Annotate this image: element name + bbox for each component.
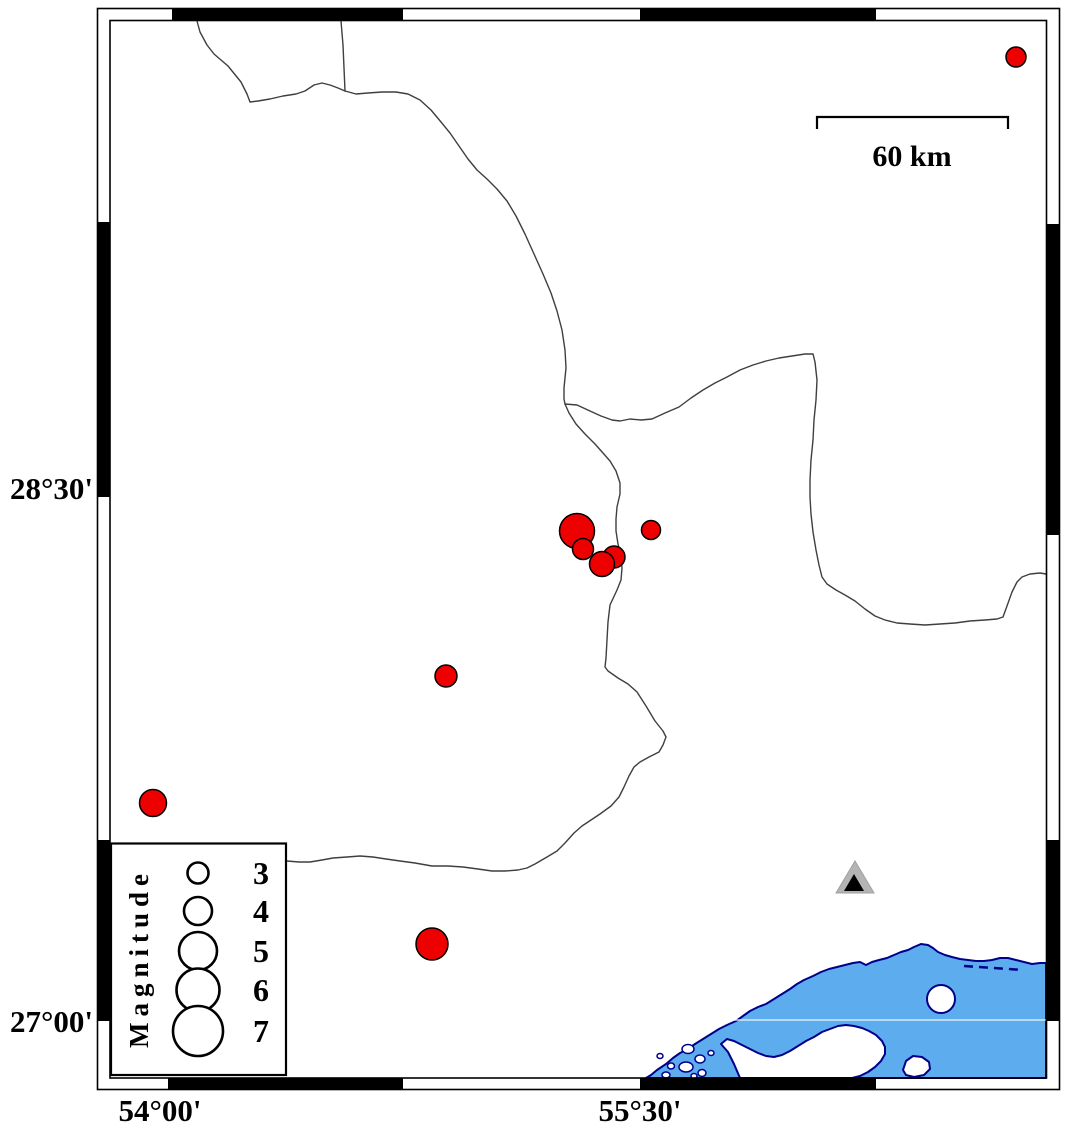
scale-bar-label: 60 km — [872, 140, 951, 173]
island-south — [903, 1056, 930, 1077]
boundary-line-northwest — [197, 21, 345, 102]
map-canvas: 60 km Magnitude 34567 28°30' 27°00' 54°0… — [0, 0, 1066, 1128]
scale-bar-bracket — [817, 117, 1008, 129]
legend-circle-m3 — [188, 863, 209, 884]
seismicity-map: 60 km Magnitude 34567 28°30' 27°00' 54°0… — [0, 0, 1066, 1128]
legend-label-m5: 5 — [253, 933, 269, 969]
boundary-line-east — [565, 354, 1046, 625]
earthquake-marker — [642, 521, 661, 540]
earthquake-layer — [140, 47, 1027, 960]
lon-label-5530: 55°30' — [598, 1093, 681, 1128]
sea-area — [646, 944, 1046, 1079]
boundary-line-south — [287, 404, 666, 871]
legend-label-m6: 6 — [253, 972, 269, 1008]
lat-label-2700: 27°00' — [10, 1004, 93, 1039]
boundary-line-north — [341, 21, 345, 91]
legend-title: Magnitude — [124, 868, 154, 1048]
legend-label-m7: 7 — [253, 1013, 269, 1049]
legend-label-m4: 4 — [253, 893, 269, 929]
earthquake-marker — [1006, 47, 1026, 67]
earthquake-marker — [435, 665, 457, 687]
earthquake-marker — [590, 552, 615, 577]
station-marker — [836, 861, 874, 893]
lon-label-5400: 54°00' — [118, 1093, 201, 1128]
legend-circle-m4 — [184, 897, 212, 925]
boundary-line-central — [345, 91, 566, 404]
island-round — [927, 985, 955, 1013]
scale-bar: 60 km — [817, 117, 1008, 173]
earthquake-marker — [140, 790, 167, 817]
legend-label-m3: 3 — [253, 855, 269, 891]
legend-circle-m7 — [173, 1006, 223, 1056]
magnitude-legend: Magnitude 34567 — [111, 844, 286, 1076]
legend-circle-m5 — [179, 932, 217, 970]
lat-label-2830: 28°30' — [10, 471, 93, 506]
earthquake-marker — [416, 928, 448, 960]
earthquake-marker — [573, 539, 594, 560]
